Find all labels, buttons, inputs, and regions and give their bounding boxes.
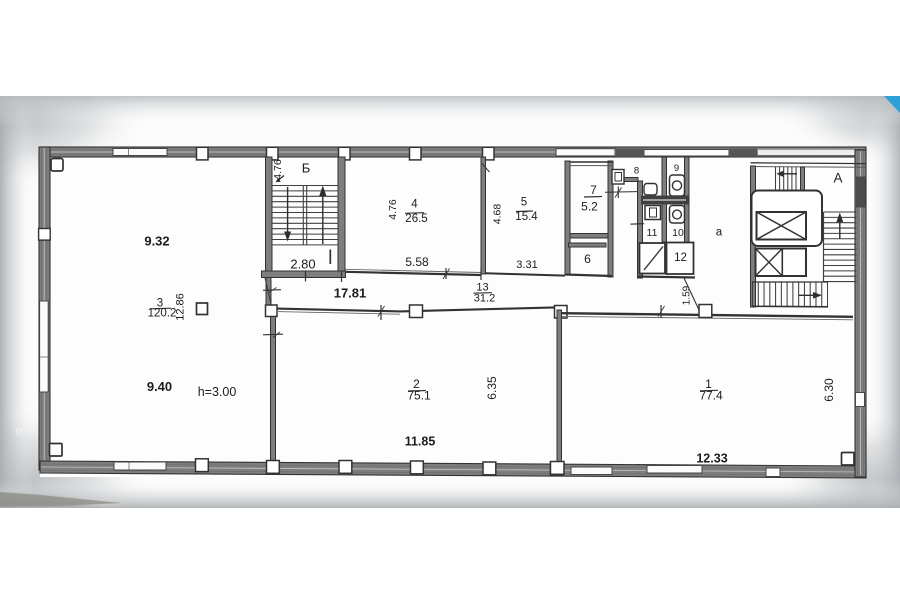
svg-text:77.4: 77.4 (699, 389, 723, 403)
svg-text:26.5: 26.5 (405, 213, 427, 225)
svg-text:4.76: 4.76 (272, 159, 284, 180)
svg-text:1.59: 1.59 (682, 285, 693, 305)
svg-text:а: а (716, 227, 723, 239)
svg-text:2.80: 2.80 (290, 257, 315, 272)
svg-text:17.81: 17.81 (334, 286, 367, 301)
svg-text:А: А (833, 171, 842, 186)
svg-text:7: 7 (590, 183, 597, 197)
svg-text:Б: Б (302, 161, 311, 176)
svg-text:3.31: 3.31 (516, 259, 537, 271)
svg-text:6.30: 6.30 (822, 378, 836, 402)
svg-text:120.2: 120.2 (148, 308, 177, 320)
svg-text:12.86: 12.86 (175, 293, 187, 321)
svg-text:12: 12 (674, 252, 687, 264)
svg-text:4.68: 4.68 (492, 204, 504, 225)
svg-text:5: 5 (521, 197, 527, 209)
svg-text:4: 4 (411, 199, 418, 211)
svg-text:6: 6 (584, 252, 591, 266)
svg-text:5.2: 5.2 (581, 200, 598, 214)
svg-text:9.32: 9.32 (144, 234, 169, 249)
svg-text:10: 10 (672, 227, 684, 239)
svg-text:о: о (16, 424, 23, 438)
svg-text:75.1: 75.1 (407, 389, 431, 403)
svg-text:h=3.00: h=3.00 (198, 385, 237, 399)
svg-text:4.76: 4.76 (387, 199, 399, 220)
svg-text:9.40: 9.40 (147, 379, 172, 394)
svg-text:8: 8 (634, 166, 639, 177)
svg-text:х: х (873, 424, 879, 438)
svg-text:9: 9 (674, 163, 679, 174)
svg-text:5.58: 5.58 (405, 255, 429, 269)
svg-text:6.35: 6.35 (485, 376, 499, 400)
svg-text:11.85: 11.85 (405, 435, 436, 449)
svg-text:11: 11 (647, 227, 658, 239)
svg-text:12.33: 12.33 (696, 452, 727, 466)
svg-text:31.2: 31.2 (474, 293, 495, 305)
svg-text:15.4: 15.4 (515, 211, 538, 223)
